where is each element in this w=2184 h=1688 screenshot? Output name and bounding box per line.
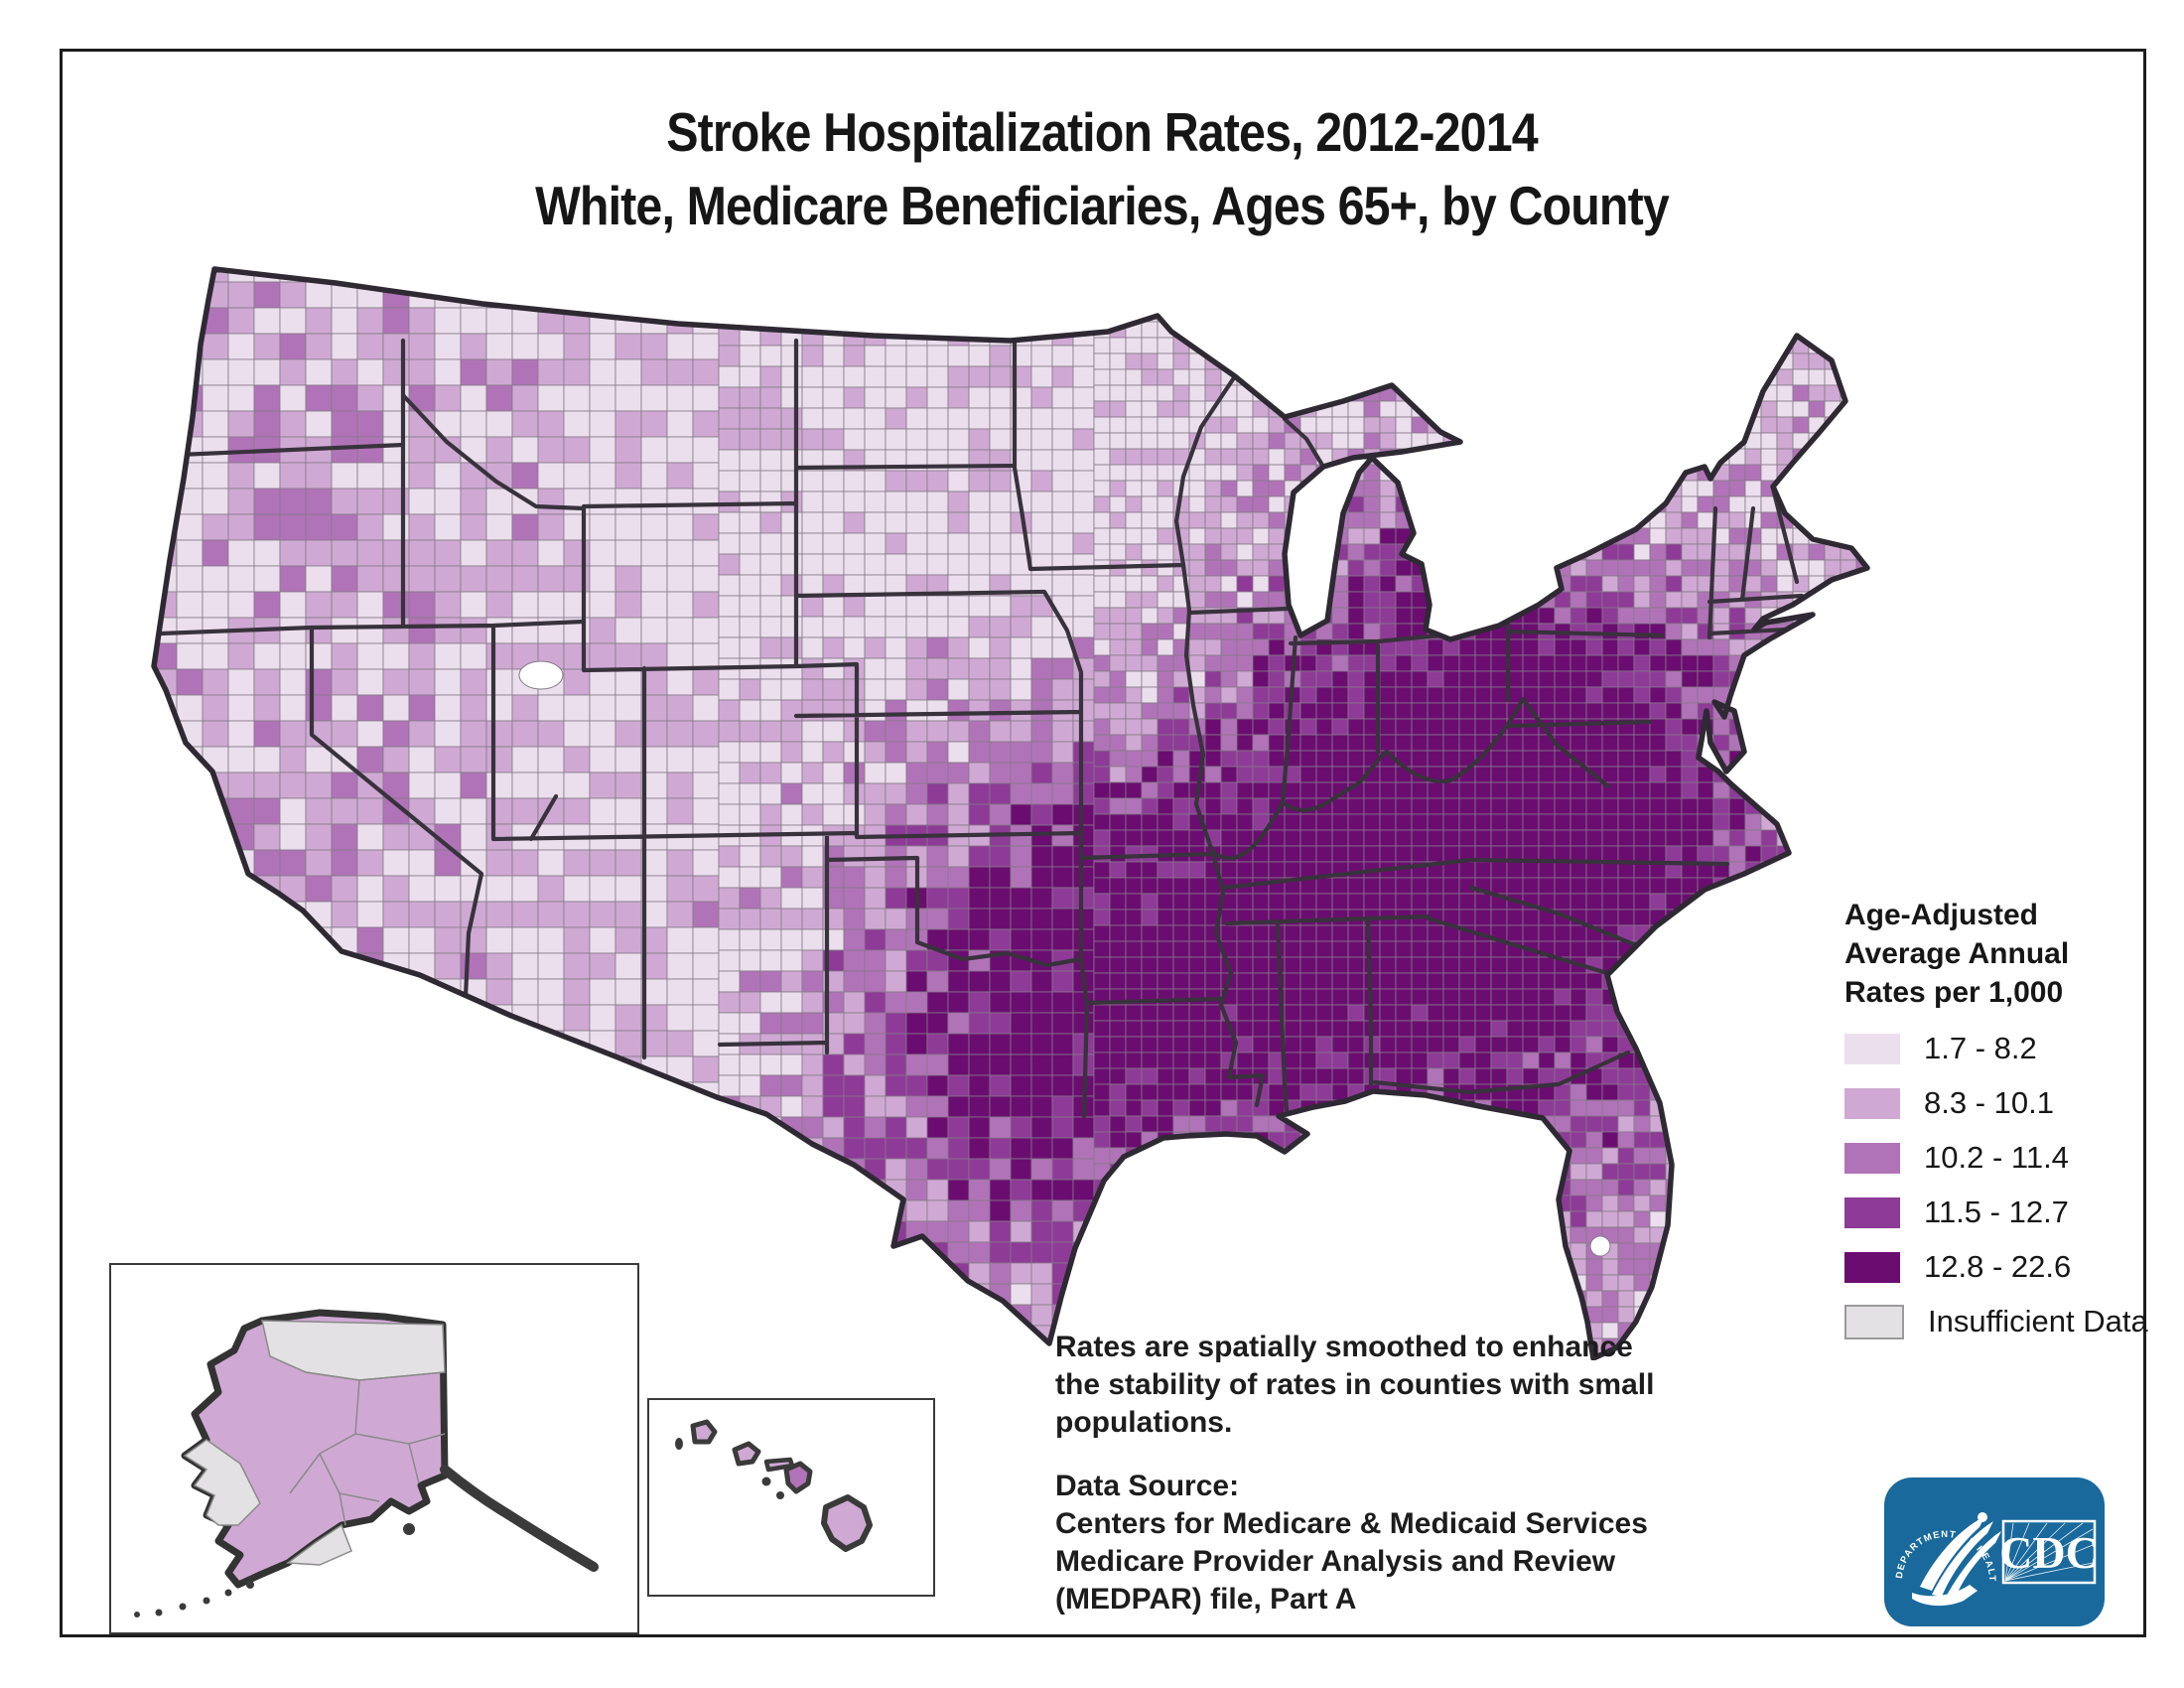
legend-swatch-class1	[1844, 1034, 1900, 1064]
legend-swatch-class2	[1844, 1088, 1900, 1119]
legend-label-class4: 11.5 - 12.7	[1924, 1195, 2069, 1230]
cdc-logo: CDC	[1999, 1521, 2099, 1583]
map-title-line1: Stroke Hospitalization Rates, 2012-2014	[185, 95, 2019, 169]
legend-label-insufficient: Insufficient Data	[1928, 1304, 2148, 1339]
legend-row: 12.8 - 22.6	[1844, 1249, 2162, 1285]
alaska-inset	[109, 1263, 639, 1634]
hhs-cdc-logo: DEPARTMENT OF HEALTH & HUMAN SERVICES · …	[1882, 1476, 2107, 1628]
legend-title: Age-Adjusted Average Annual Rates per 1,…	[1844, 896, 2162, 1012]
legend-row: Insufficient Data	[1844, 1304, 2162, 1339]
us-county-choropleth-map	[99, 179, 1906, 1360]
legend-swatch-class3	[1844, 1143, 1900, 1174]
legend-swatch-insufficient	[1844, 1305, 1904, 1339]
legend-row: 11.5 - 12.7	[1844, 1195, 2162, 1230]
legend-row: 8.3 - 10.1	[1844, 1085, 2162, 1121]
legend-swatch-class4	[1844, 1197, 1900, 1228]
legend-label-class2: 8.3 - 10.1	[1924, 1085, 2054, 1121]
legend-row: 1.7 - 8.2	[1844, 1031, 2162, 1066]
legend-label-class5: 12.8 - 22.6	[1924, 1249, 2071, 1285]
legend-label-class1: 1.7 - 8.2	[1924, 1031, 2037, 1066]
alaska-map	[111, 1265, 637, 1632]
hawaii-inset	[647, 1398, 935, 1597]
cdc-wordmark: CDC	[1999, 1527, 2099, 1578]
legend-row: 10.2 - 11.4	[1844, 1140, 2162, 1176]
legend: Age-Adjusted Average Annual Rates per 1,…	[1844, 896, 2162, 1339]
legend-label-class3: 10.2 - 11.4	[1924, 1140, 2069, 1176]
data-source-note: Data Source: Centers for Medicare & Medi…	[1055, 1468, 1648, 1618]
smoothing-note: Rates are spatially smoothed to enhance …	[1055, 1329, 1654, 1442]
legend-swatch-class5	[1844, 1252, 1900, 1283]
hawaii-map	[649, 1400, 933, 1595]
